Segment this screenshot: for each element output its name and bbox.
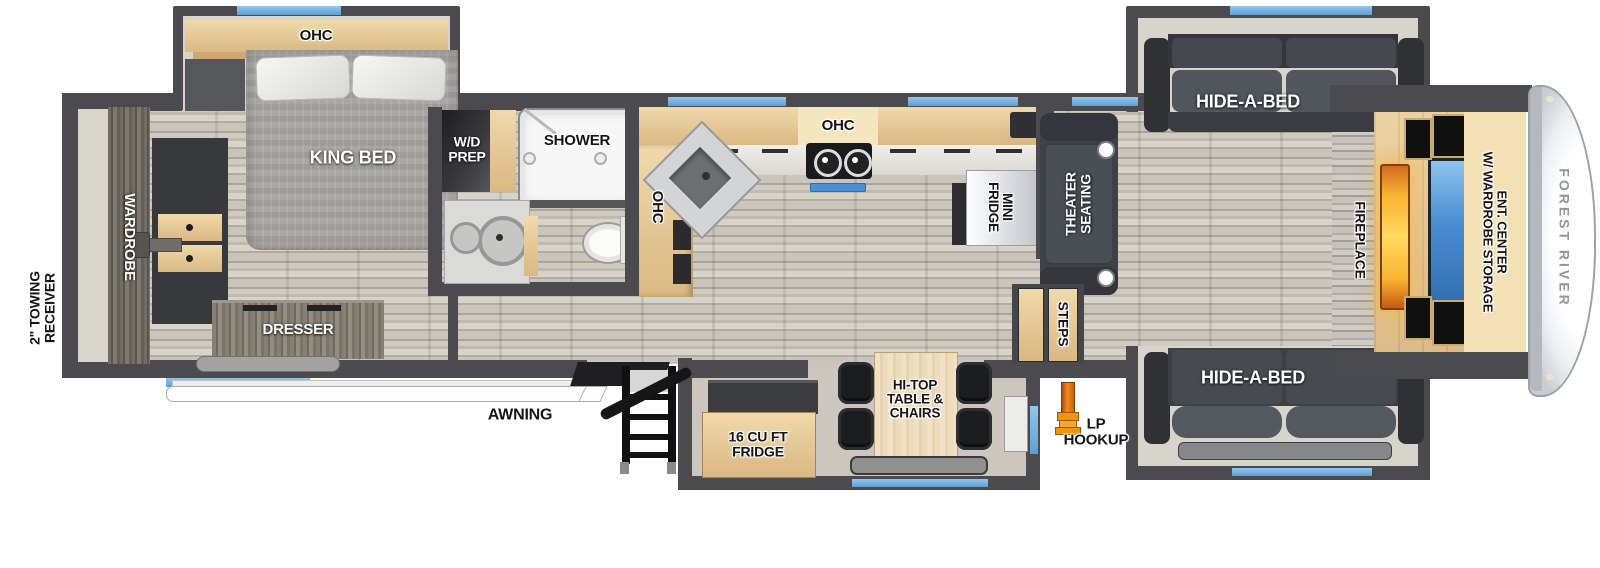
living-window — [1072, 97, 1138, 106]
hi-top-table-label: HI-TOPTABLE &CHAIRS — [887, 379, 943, 422]
towing-receiver-label: 2" TOWINGRECEIVER — [27, 271, 56, 345]
top-sofa-back-cushion — [1172, 38, 1282, 68]
dining-chair — [956, 408, 992, 450]
vanity-faucet — [496, 234, 503, 241]
stove-burner-dot — [822, 157, 828, 163]
kitchen-window — [668, 97, 786, 106]
hide-a-bed-bottom-label: HIDE-A-BED — [1201, 369, 1305, 388]
kitchen-window — [908, 97, 1018, 106]
steps-label: STEPS — [1056, 302, 1071, 347]
kitchen-cabinet-front — [673, 254, 691, 284]
top-sofa-front — [1168, 112, 1398, 132]
vanity-sink — [478, 216, 528, 266]
cabinet-door — [1404, 118, 1432, 160]
cabinet-handle — [890, 149, 916, 153]
dining-slideout-window — [852, 479, 988, 487]
dining-chair — [838, 408, 874, 450]
shower-pan — [518, 108, 640, 208]
vanity-sink-small — [450, 222, 482, 254]
entry-steps-foot — [667, 462, 676, 474]
shower-drain — [523, 152, 536, 165]
bedroom-rear-trim — [78, 109, 108, 362]
stove-burner — [844, 149, 872, 177]
vanity-wood-edge — [524, 216, 538, 276]
fireplace-label: FIREPLACE — [1353, 201, 1368, 279]
theater-cupholder — [1097, 141, 1115, 159]
step-tread — [1018, 288, 1044, 362]
shower-drain — [594, 152, 607, 165]
shower-threshold — [526, 200, 630, 208]
sink-faucet — [702, 172, 710, 180]
cabinet-door — [1432, 114, 1468, 158]
fireplace-insert — [1380, 164, 1410, 310]
exterior-fridge-label: 16 CU FTFRIDGE — [728, 429, 787, 458]
awning-tube — [166, 386, 592, 402]
drawer-knob — [186, 255, 193, 262]
dining-chair — [956, 362, 992, 404]
theater-armrest — [1040, 113, 1118, 141]
exterior-fridge-top — [708, 380, 818, 414]
front-cap-marker — [1546, 374, 1554, 380]
awning-label: AWNING — [488, 408, 553, 425]
lp-hookup-label: LPHOOKUP — [1064, 416, 1129, 448]
hide-a-bed-top-label: HIDE-A-BED — [1196, 93, 1300, 112]
cabinet-handle — [762, 149, 788, 153]
theater-seating-label: THEATERSEATING — [1063, 172, 1092, 236]
dining-chair — [838, 362, 874, 404]
cabinet-door — [1404, 296, 1432, 340]
bedroom-slideout-window — [237, 6, 341, 15]
bathroom-wall-left — [428, 107, 442, 296]
top-sofa-armrest-left — [1144, 38, 1170, 132]
dining-wall-window — [1004, 396, 1028, 452]
dining-bench — [850, 456, 988, 475]
dresser-label: DRESSER — [262, 322, 333, 338]
tv-screen — [1428, 158, 1468, 314]
bottom-sofa-footboard — [1178, 442, 1392, 460]
bottom-sofa-seat-cushion — [1286, 406, 1396, 438]
kitchen-wall-left — [625, 107, 639, 296]
dresser-handle — [307, 305, 341, 311]
stove-burner-dot — [852, 157, 858, 163]
slide-mechanism-bar — [196, 356, 340, 372]
bed-pillow — [255, 54, 350, 101]
bathroom-wall-bottom — [428, 282, 643, 296]
front-wall-bottom-block — [1330, 352, 1532, 379]
bottom-sofa-seat-cushion — [1172, 406, 1282, 438]
shower-label: SHOWER — [544, 133, 610, 149]
dining-wall-window-strip — [1030, 406, 1038, 454]
brand-label: FOREST RIVER — [1557, 168, 1572, 307]
drawer-knob — [186, 224, 193, 231]
wardrobe-label: WARDROBE — [121, 193, 137, 281]
bottom-wall — [688, 360, 808, 378]
stove-accent-trim — [810, 183, 866, 192]
hallway-wall-post — [448, 296, 458, 362]
entry-step-rung — [624, 452, 676, 458]
dresser-handle — [243, 305, 277, 311]
rear-wall — [62, 93, 78, 378]
front-wall-top-block — [1330, 85, 1532, 112]
wd-prep-label: W/DPREP — [448, 134, 485, 163]
bottom-sofa-armrest-left — [1144, 352, 1170, 444]
top-slideout-window — [1230, 6, 1372, 15]
ent-center-label: ENT. CENTERW/ WARDROBE STORAGE — [1481, 152, 1508, 313]
bedroom-slideout-shadow — [185, 59, 245, 111]
towing-receiver-arm — [146, 238, 182, 252]
wd-prep-cabinet — [490, 110, 516, 192]
bottom-slideout-window — [1232, 468, 1372, 476]
cabinet-handle — [996, 149, 1022, 153]
cabinet-door — [1432, 300, 1468, 346]
mini-fridge-cabinet — [952, 183, 966, 245]
bed-pillow — [351, 54, 446, 101]
bottom-wall — [984, 360, 1134, 378]
kitchen-ohc-side-label: OHC — [649, 191, 665, 224]
kitchen-ohc-top-label: OHC — [822, 118, 855, 134]
front-cap-marker — [1546, 96, 1554, 102]
front-cap-band — [1530, 87, 1542, 391]
top-sofa-back-cushion — [1286, 38, 1396, 68]
theater-cupholder — [1097, 269, 1115, 287]
king-bed-label: KING BED — [310, 149, 396, 168]
lp-hookup-pipe — [1061, 382, 1075, 416]
entry-step-rung — [624, 434, 676, 440]
floorplan-canvas: OHC KING BED WARDROBE 2" TOWINGRECEIVER … — [0, 0, 1600, 568]
bedroom-ohc-label: OHC — [300, 28, 333, 44]
entry-steps-foot — [620, 462, 629, 474]
cabinet-handle — [944, 149, 970, 153]
stove-burner — [814, 149, 842, 177]
mini-fridge-label: MINIFRIDGE — [986, 182, 1014, 232]
entry-step-rung — [624, 414, 676, 420]
